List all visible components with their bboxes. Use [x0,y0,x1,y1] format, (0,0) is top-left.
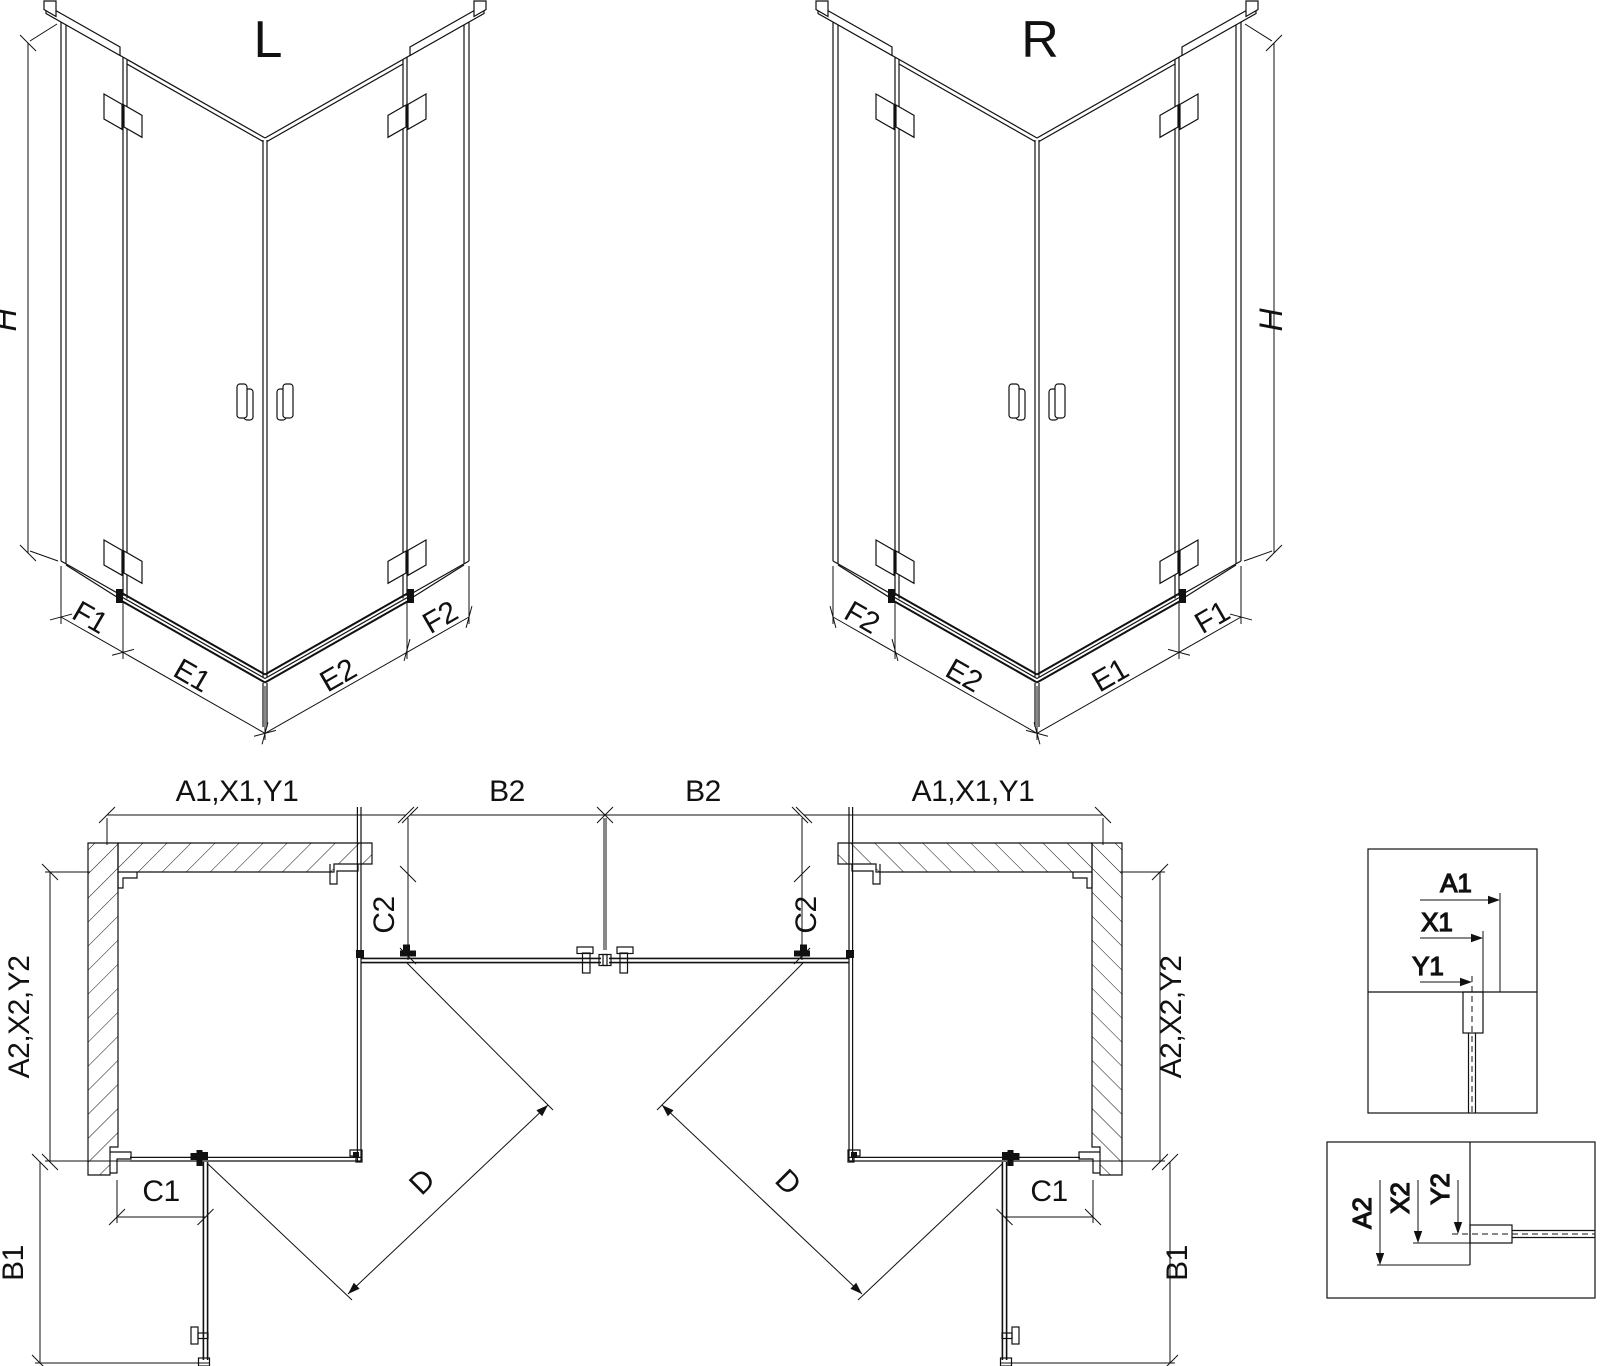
dim-label-h-right: H [1253,308,1289,332]
dim-label-e2-right: E2 [940,653,987,699]
dim-label-c2-left: C2 [368,896,401,933]
dim-label-b1-left: B1 [0,1245,30,1281]
detail-view-bottom: A2 X2 Y2 [1327,1142,1595,1298]
detail-label-x1: X1 [1421,907,1453,937]
dim-label-f2-right: F2 [839,595,885,641]
detail-label-a1: A1 [1440,868,1472,898]
detail-label-y1: Y1 [1412,951,1444,981]
variant-label-right: R [1021,11,1059,69]
plan-right-drawing [597,807,1178,1366]
dim-label-a1x1y1-left: A1,X1,Y1 [176,775,299,808]
dim-label-b1-right: B1 [1161,1245,1194,1281]
dim-label-c1-left: C1 [142,1175,179,1208]
dim-label-e2-left: E2 [315,653,362,699]
plan-view-left: A1,X1,Y1 B2 C2 A2,X2,Y2 C1 B1 D [0,775,613,1366]
dim-label-h-left: H [0,308,23,332]
dim-label-f1-right: F1 [1189,595,1235,641]
iso-view-right: R H F2 E2 E1 F1 [816,1,1289,744]
dim-label-f2-left: F2 [417,595,463,641]
dim-label-e1-right: E1 [1087,653,1134,699]
detail-label-a2: A2 [1347,1197,1377,1229]
dim-label-e1-left: E1 [168,653,215,699]
dim-label-a2x2y2-right: A2,X2,Y2 [1155,956,1188,1079]
dim-label-b2-right: B2 [685,775,721,808]
variant-label-left: L [254,11,283,69]
dim-label-f1-left: F1 [67,595,113,641]
dim-label-d-left: D [403,1163,441,1201]
detail-label-y2: Y2 [1425,1173,1455,1205]
dim-label-a2x2y2-left: A2,X2,Y2 [3,956,36,1079]
shower-enclosure-technical-drawing: L H F1 E1 E2 F2 R H F2 E2 E1 F1 A1,X1,Y1… [0,0,1600,1366]
dim-label-c2-right: C2 [790,896,823,933]
dim-label-d-right: D [769,1163,807,1201]
detail-view-top: A1 X1 Y1 [1368,849,1537,1113]
dim-label-c1-right: C1 [1030,1175,1067,1208]
dim-label-a1x1y1-right: A1,X1,Y1 [912,775,1035,808]
iso-view-left: L H F1 E1 E2 F2 [0,1,486,744]
detail-label-x2: X2 [1385,1182,1415,1214]
plan-left-drawing [32,807,613,1366]
plan-view-right: A1,X1,Y1 B2 C2 A2,X2,Y2 C1 B1 D [597,775,1194,1366]
drawing-svg: L H F1 E1 E2 F2 R H F2 E2 E1 F1 A1,X1,Y1… [0,0,1600,1366]
dim-label-b2-left: B2 [489,775,525,808]
